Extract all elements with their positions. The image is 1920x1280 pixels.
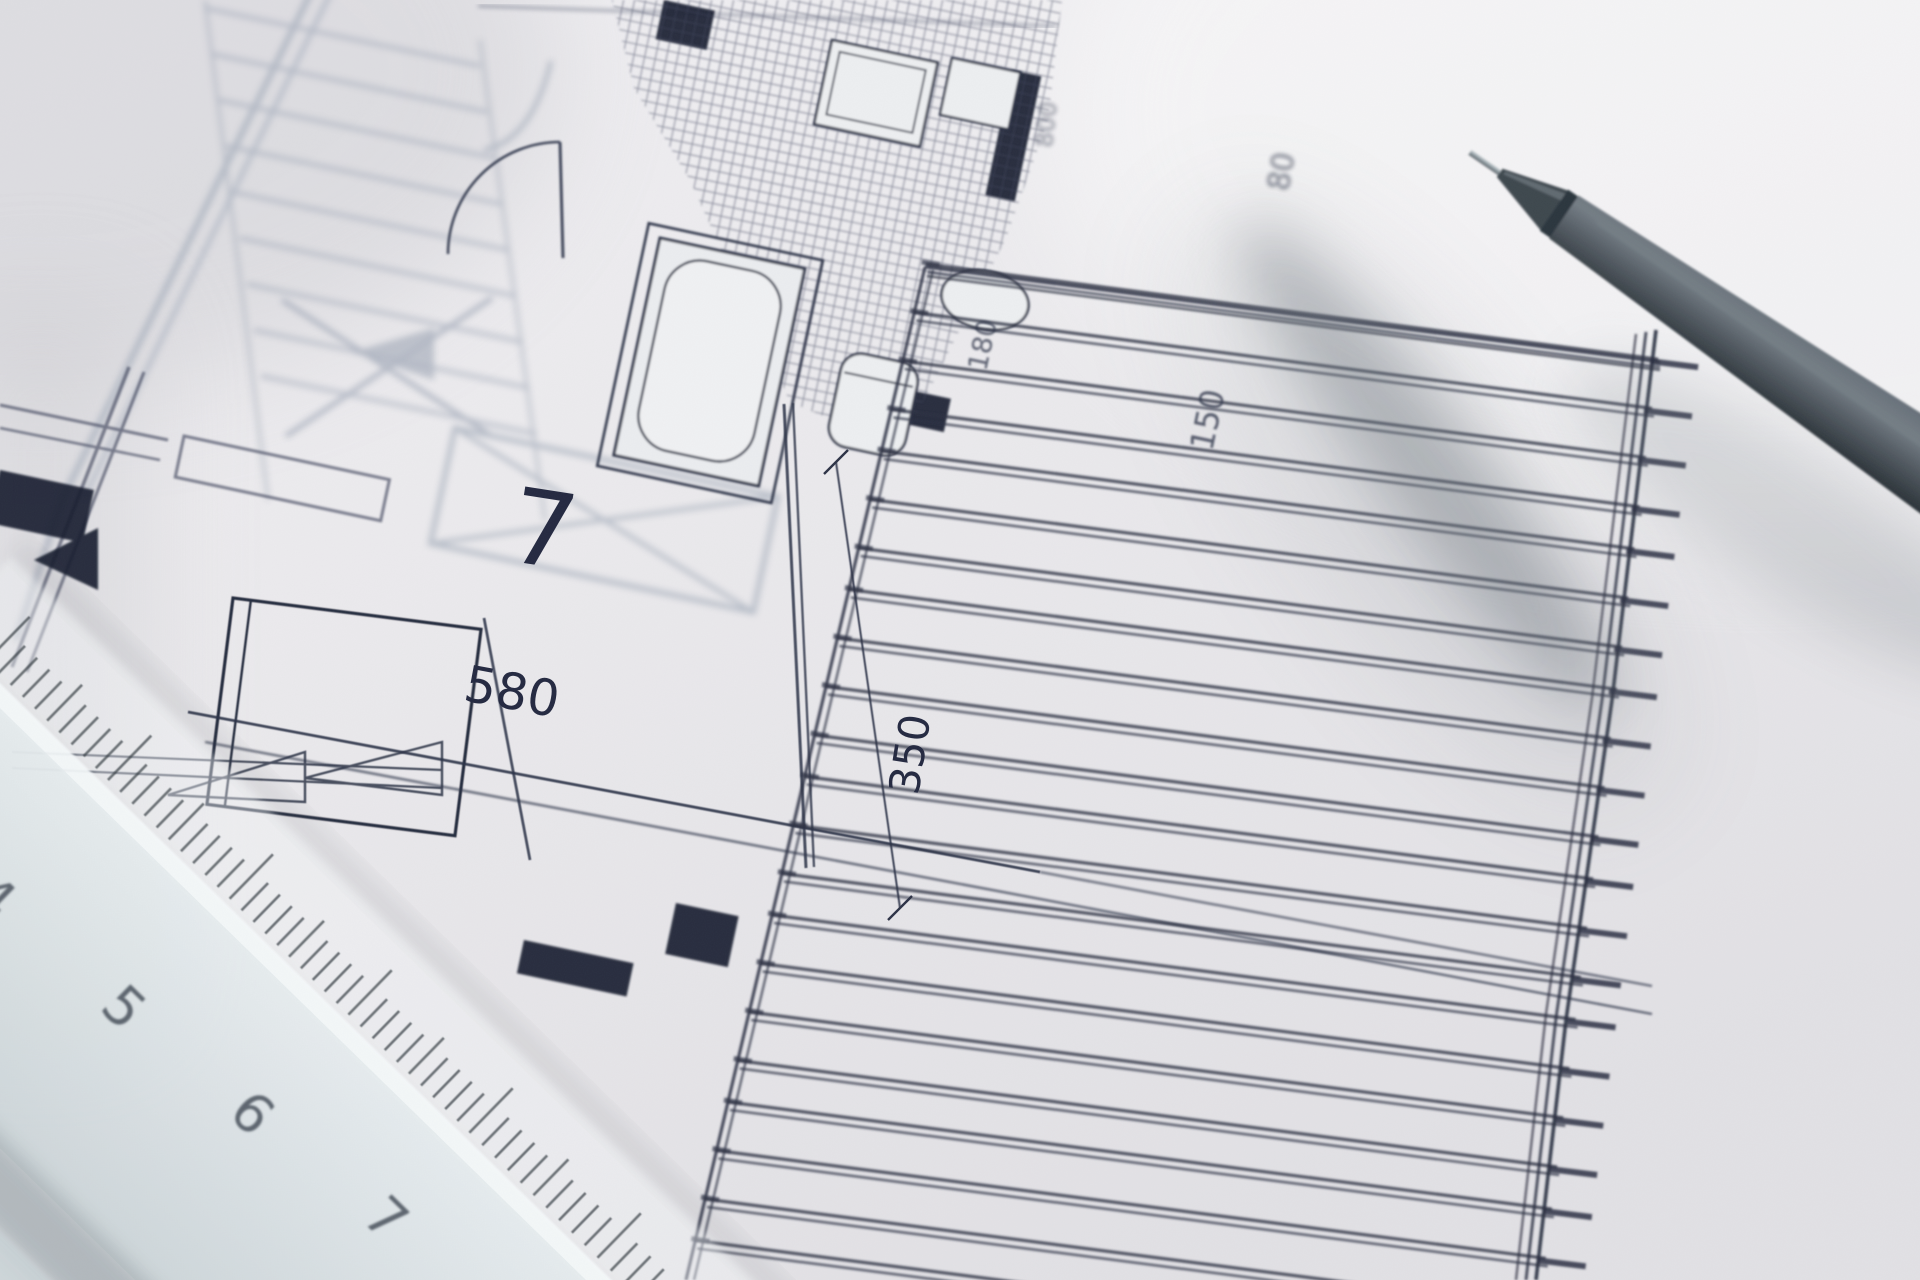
photo-canvas: 7 580 350 150 180 80 800 4 5 6 <box>0 0 1920 1280</box>
film-grain <box>0 0 1920 1280</box>
photo-of-floor-plan: 7 580 350 150 180 80 800 4 5 6 <box>0 0 1920 1280</box>
